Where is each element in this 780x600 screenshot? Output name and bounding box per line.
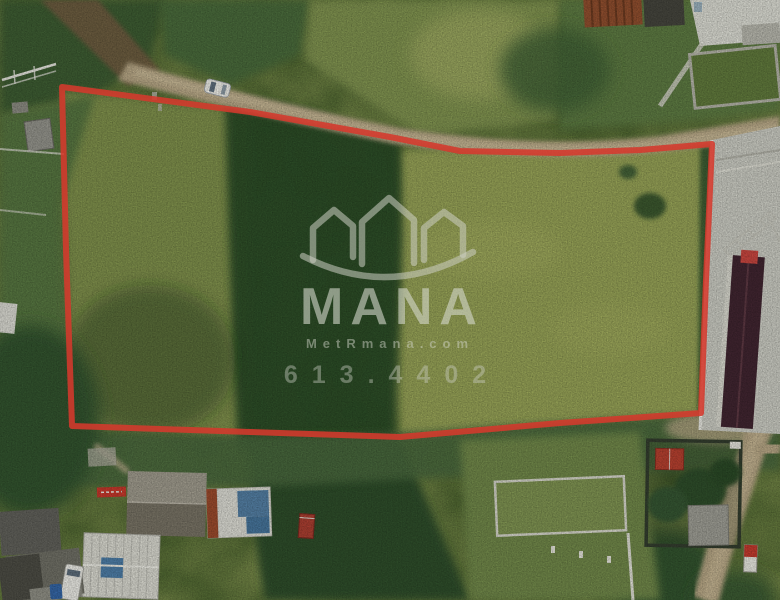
watermark-brand-text: MANA (300, 278, 484, 336)
watermark-website-text: MetRmana.com (306, 336, 474, 351)
aerial-photo-canvas: MANA MetRmana.com 613.4402 (0, 0, 780, 600)
watermark-phone-text: 613.4402 (284, 361, 500, 389)
aerial-photo: MANA MetRmana.com 613.4402 (0, 0, 780, 600)
